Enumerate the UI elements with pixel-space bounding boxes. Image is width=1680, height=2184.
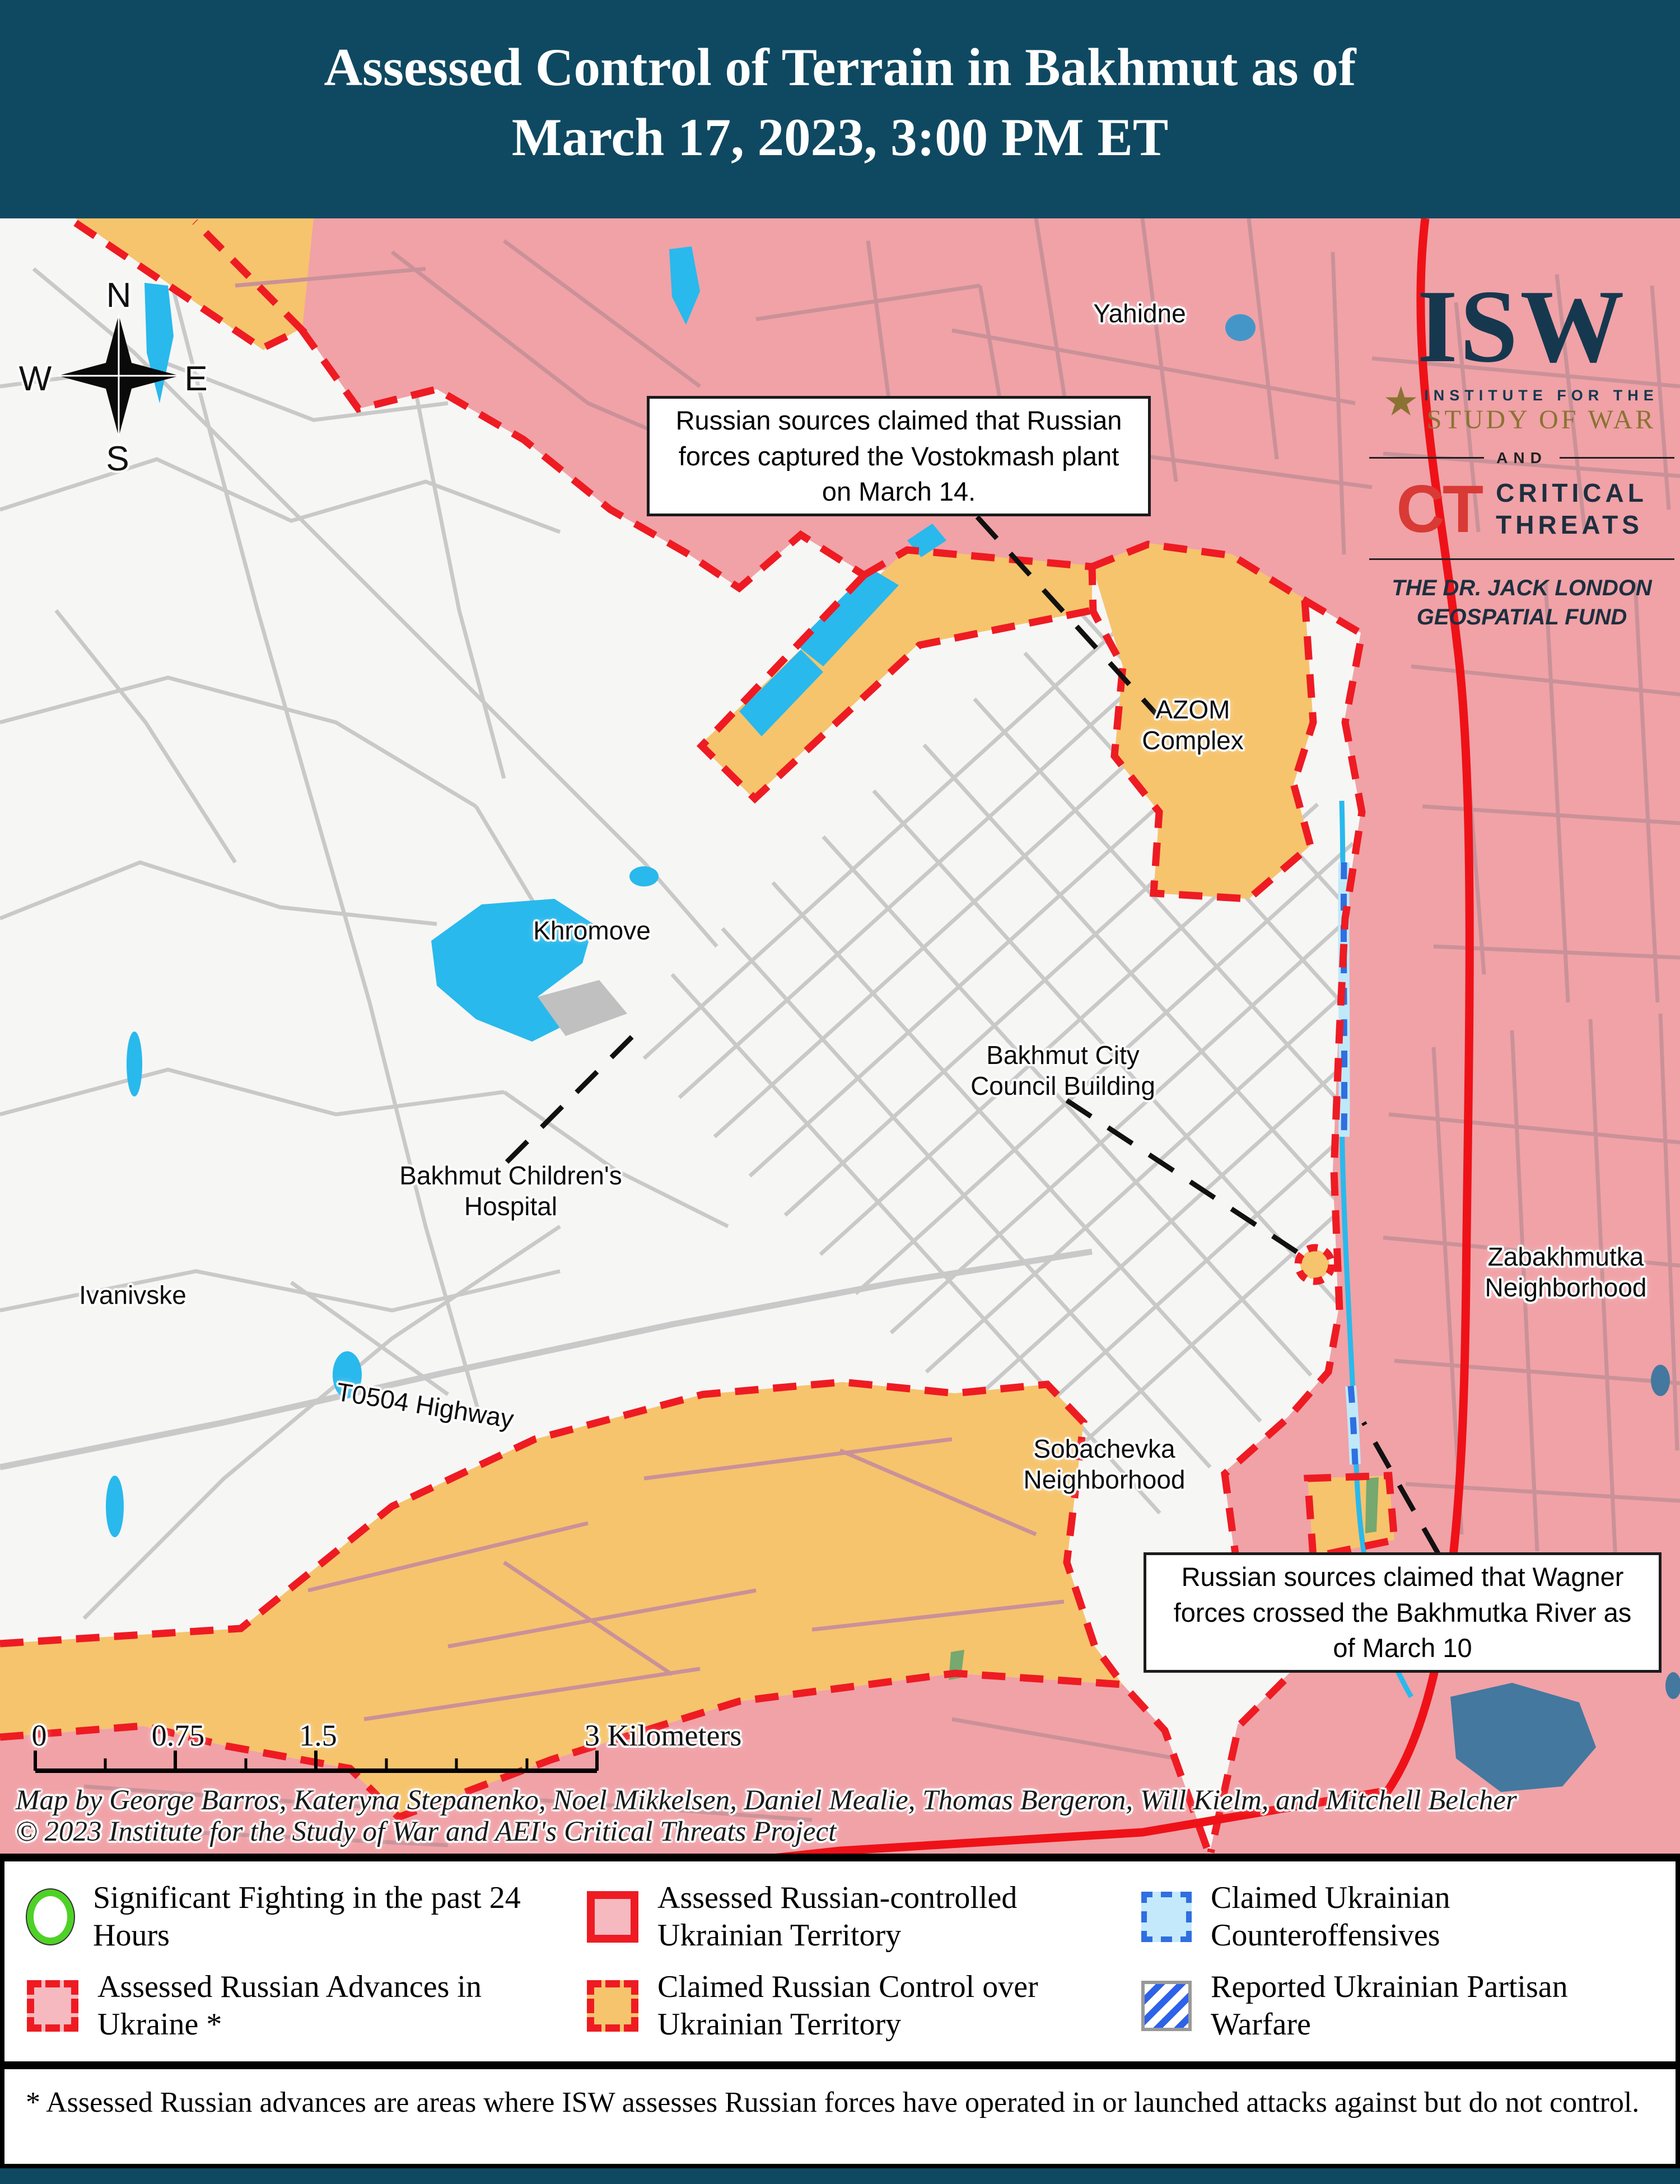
claimed-russian-swatch-icon <box>587 1980 638 2032</box>
critical-threats-logo: CT CRITICAL THREATS <box>1369 477 1674 542</box>
legend-label: Significant Fighting in the past 24 Hour… <box>93 1879 541 1954</box>
isw-wordmark: ISW <box>1417 269 1627 384</box>
and-label: AND <box>1496 450 1547 466</box>
isw-bakhmut-map-page: Assessed Control of Terrain in Bakhmut a… <box>0 0 1680 2184</box>
legend: Significant Fighting in the past 24 Hour… <box>0 1854 1680 2069</box>
russian-advances-swatch-icon <box>27 1980 78 2032</box>
scale-tick-0: 0 <box>32 1720 47 1751</box>
isw-star-icon: ★ <box>1385 384 1419 420</box>
compass-east-label: E <box>184 362 207 396</box>
critical-label: CRITICAL <box>1496 477 1648 510</box>
divider-line-right <box>1560 457 1674 459</box>
fund-divider-line <box>1369 558 1674 560</box>
scale-tick-075: 0.75 <box>152 1720 205 1751</box>
scale-tick-15: 1.5 <box>299 1720 337 1751</box>
title-bar: Assessed Control of Terrain in Bakhmut a… <box>0 0 1680 218</box>
annotation-vostokmash-text: Russian sources claimed that Russian for… <box>665 403 1132 509</box>
annotation-vostokmash: Russian sources claimed that Russian for… <box>647 396 1151 516</box>
divider-line-left <box>1369 457 1484 459</box>
legend-item-russian-controlled: Assessed Russian-controlled Ukrainian Te… <box>587 1879 1141 1954</box>
fund-line2: GEOSPATIAL FUND <box>1369 603 1674 632</box>
legend-label: Assessed Russian Advances in Ukraine * <box>97 1968 545 2043</box>
legend-label: Assessed Russian-controlled Ukrainian Te… <box>657 1879 1105 1954</box>
ct-monogram: CT <box>1396 479 1481 539</box>
annotation-wagner-text: Russian sources claimed that Wagner forc… <box>1162 1559 1643 1665</box>
label-zabakhmutka: Zabakhmutka Neighborhood <box>1448 1242 1680 1303</box>
label-ivanivske: Ivanivske <box>79 1280 186 1310</box>
map-credits-line1: Map by George Barros, Kateryna Stepanenk… <box>16 1786 1517 1815</box>
label-yahidne: Yahidne <box>1093 298 1186 329</box>
compass-north-label: N <box>106 278 132 313</box>
legend-label: Reported Ukrainian Partisan Warfare <box>1211 1968 1659 2043</box>
page-title-line1: Assessed Control of Terrain in Bakhmut a… <box>0 32 1680 102</box>
partisan-warfare-swatch-icon <box>1141 1981 1192 2031</box>
branding-block: ISW ★ INSTITUTE FOR THE STUDY OF WAR AND… <box>1369 274 1674 632</box>
footnote: * Assessed Russian advances are areas wh… <box>0 2069 1680 2168</box>
legend-item-significant-fighting: Significant Fighting in the past 24 Hour… <box>27 1879 587 1954</box>
compass-west-label: W <box>19 362 52 396</box>
label-childrens-hospital: Bakhmut Children's Hospital <box>382 1160 640 1222</box>
page-title-line2: March 17, 2023, 3:00 PM ET <box>0 102 1680 172</box>
threats-label: THREATS <box>1496 509 1648 542</box>
map-credits-line2: © 2023 Institute for the Study of War an… <box>16 1818 836 1846</box>
legend-item-counteroffensives: Claimed Ukrainian Counteroffensives <box>1141 1879 1680 1954</box>
label-city-council: Bakhmut City Council Building <box>951 1040 1175 1102</box>
bottom-bar <box>0 2168 1680 2184</box>
legend-item-claimed-russian-control: Claimed Russian Control over Ukrainian T… <box>587 1968 1141 2043</box>
geospatial-fund-text: THE DR. JACK LONDON GEOSPATIAL FUND <box>1369 573 1674 632</box>
footnote-text: * Assessed Russian advances are areas wh… <box>26 2087 1639 2118</box>
label-khromove: Khromove <box>533 915 651 946</box>
compass-south-label: S <box>106 442 129 477</box>
and-divider: AND <box>1369 450 1674 466</box>
legend-label: Claimed Russian Control over Ukrainian T… <box>657 1968 1105 2043</box>
label-azom-complex: AZOM Complex <box>1126 694 1260 756</box>
legend-label: Claimed Ukrainian Counteroffensives <box>1211 1879 1659 1954</box>
scale-tick-3km: 3 Kilometers <box>585 1720 741 1751</box>
label-sobachevka: Sobachevka Neighborhood <box>992 1434 1216 1495</box>
fund-line1: THE DR. JACK LONDON <box>1369 573 1674 603</box>
legend-item-russian-advances: Assessed Russian Advances in Ukraine * <box>27 1968 587 2043</box>
russian-controlled-swatch-icon <box>587 1891 638 1943</box>
isw-logo: ISW ★ <box>1369 274 1674 379</box>
annotation-wagner: Russian sources claimed that Wagner forc… <box>1144 1552 1662 1673</box>
critical-threats-text: CRITICAL THREATS <box>1496 477 1648 542</box>
map-canvas: N W E S ISW ★ INSTITUTE FOR THE STUDY OF… <box>0 218 1680 1854</box>
legend-item-partisan-warfare: Reported Ukrainian Partisan Warfare <box>1141 1968 1680 2043</box>
counteroffensive-swatch-icon <box>1141 1892 1192 1942</box>
significant-fighting-icon <box>27 1889 74 1944</box>
